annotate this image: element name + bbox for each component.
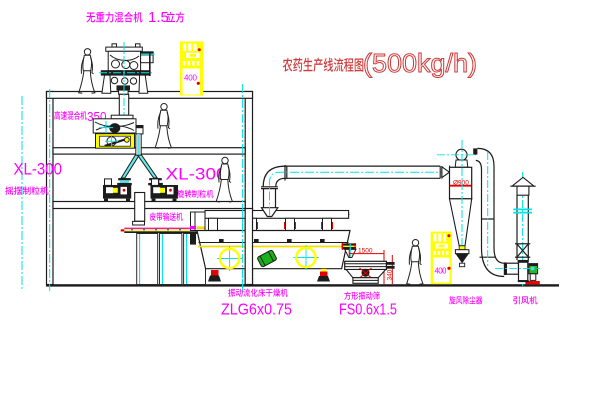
svg-text:400: 400 (435, 267, 448, 276)
svg-text:ZLG6x0.75: ZLG6x0.75 (221, 302, 292, 319)
svg-text:1.5: 1.5 (148, 9, 169, 26)
svg-text:XL-300: XL-300 (166, 165, 227, 184)
svg-text:340: 340 (387, 269, 394, 280)
svg-text:400: 400 (184, 74, 198, 83)
svg-text:(500kg/h): (500kg/h) (363, 48, 477, 78)
svg-text:1500: 1500 (358, 248, 373, 255)
svg-text:XL-300: XL-300 (14, 160, 63, 179)
svg-text:FS0.6x1.5: FS0.6x1.5 (339, 302, 397, 319)
